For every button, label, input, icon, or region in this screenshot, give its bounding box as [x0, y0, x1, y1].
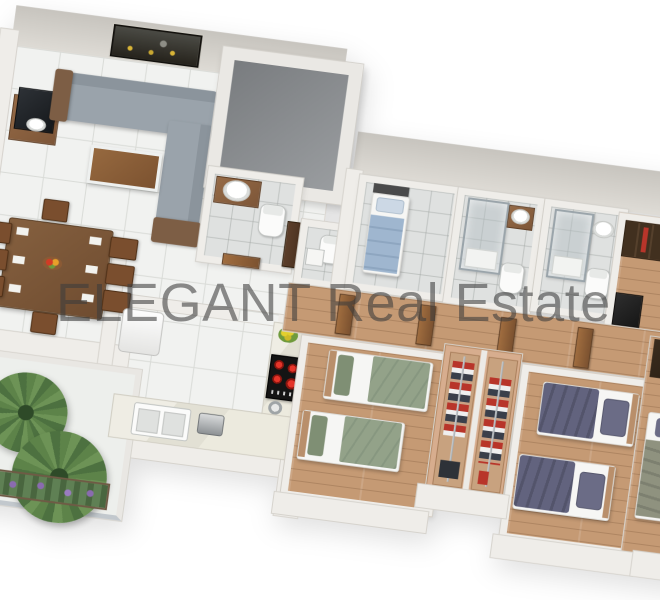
duvet: [339, 416, 402, 469]
burner: [272, 374, 283, 385]
shower-tray: [464, 247, 498, 270]
floor-plan-render: ELEGANT Real Estate: [0, 0, 660, 600]
cooktop-controls: [271, 390, 295, 397]
pillow: [654, 418, 660, 442]
red-garment: [640, 227, 648, 252]
single-bed-blue: [362, 192, 410, 277]
single-bed-green: [296, 410, 405, 473]
single-bed-green: [323, 349, 434, 412]
place-setting: [16, 227, 29, 236]
pillow: [375, 197, 405, 215]
single-bed-purple: [512, 454, 616, 522]
storage-box: [438, 460, 460, 480]
place-setting: [12, 255, 25, 264]
dark-unit: [649, 339, 660, 386]
duvet: [538, 382, 600, 439]
burner: [273, 359, 284, 370]
outer-wall-east: [630, 551, 660, 590]
sink: [591, 220, 615, 240]
duvet: [513, 455, 575, 514]
sink-basin: [161, 412, 186, 438]
fruit-bowl: [42, 255, 64, 271]
media-unit: [611, 292, 643, 328]
dining-chair: [30, 311, 58, 335]
toilet: [257, 203, 287, 239]
dark-wardrobe: [621, 220, 660, 264]
pillow: [575, 471, 606, 510]
pillow: [333, 354, 354, 396]
duvet: [636, 439, 660, 522]
sink-basin: [136, 408, 161, 434]
place-setting: [8, 284, 21, 293]
watermark-text: ELEGANT Real Estate: [56, 272, 611, 334]
dining-chair: [41, 198, 69, 222]
red-garment: [477, 471, 489, 486]
single-bed-purple: [536, 381, 640, 447]
floor-sink: [305, 248, 325, 267]
duvet: [367, 356, 430, 409]
duvet: [363, 214, 404, 274]
pillow: [599, 398, 630, 437]
dining-chair: [108, 236, 138, 261]
place-setting: [89, 236, 102, 245]
pillow: [307, 415, 328, 457]
bed: [634, 412, 660, 526]
toaster: [197, 412, 225, 436]
